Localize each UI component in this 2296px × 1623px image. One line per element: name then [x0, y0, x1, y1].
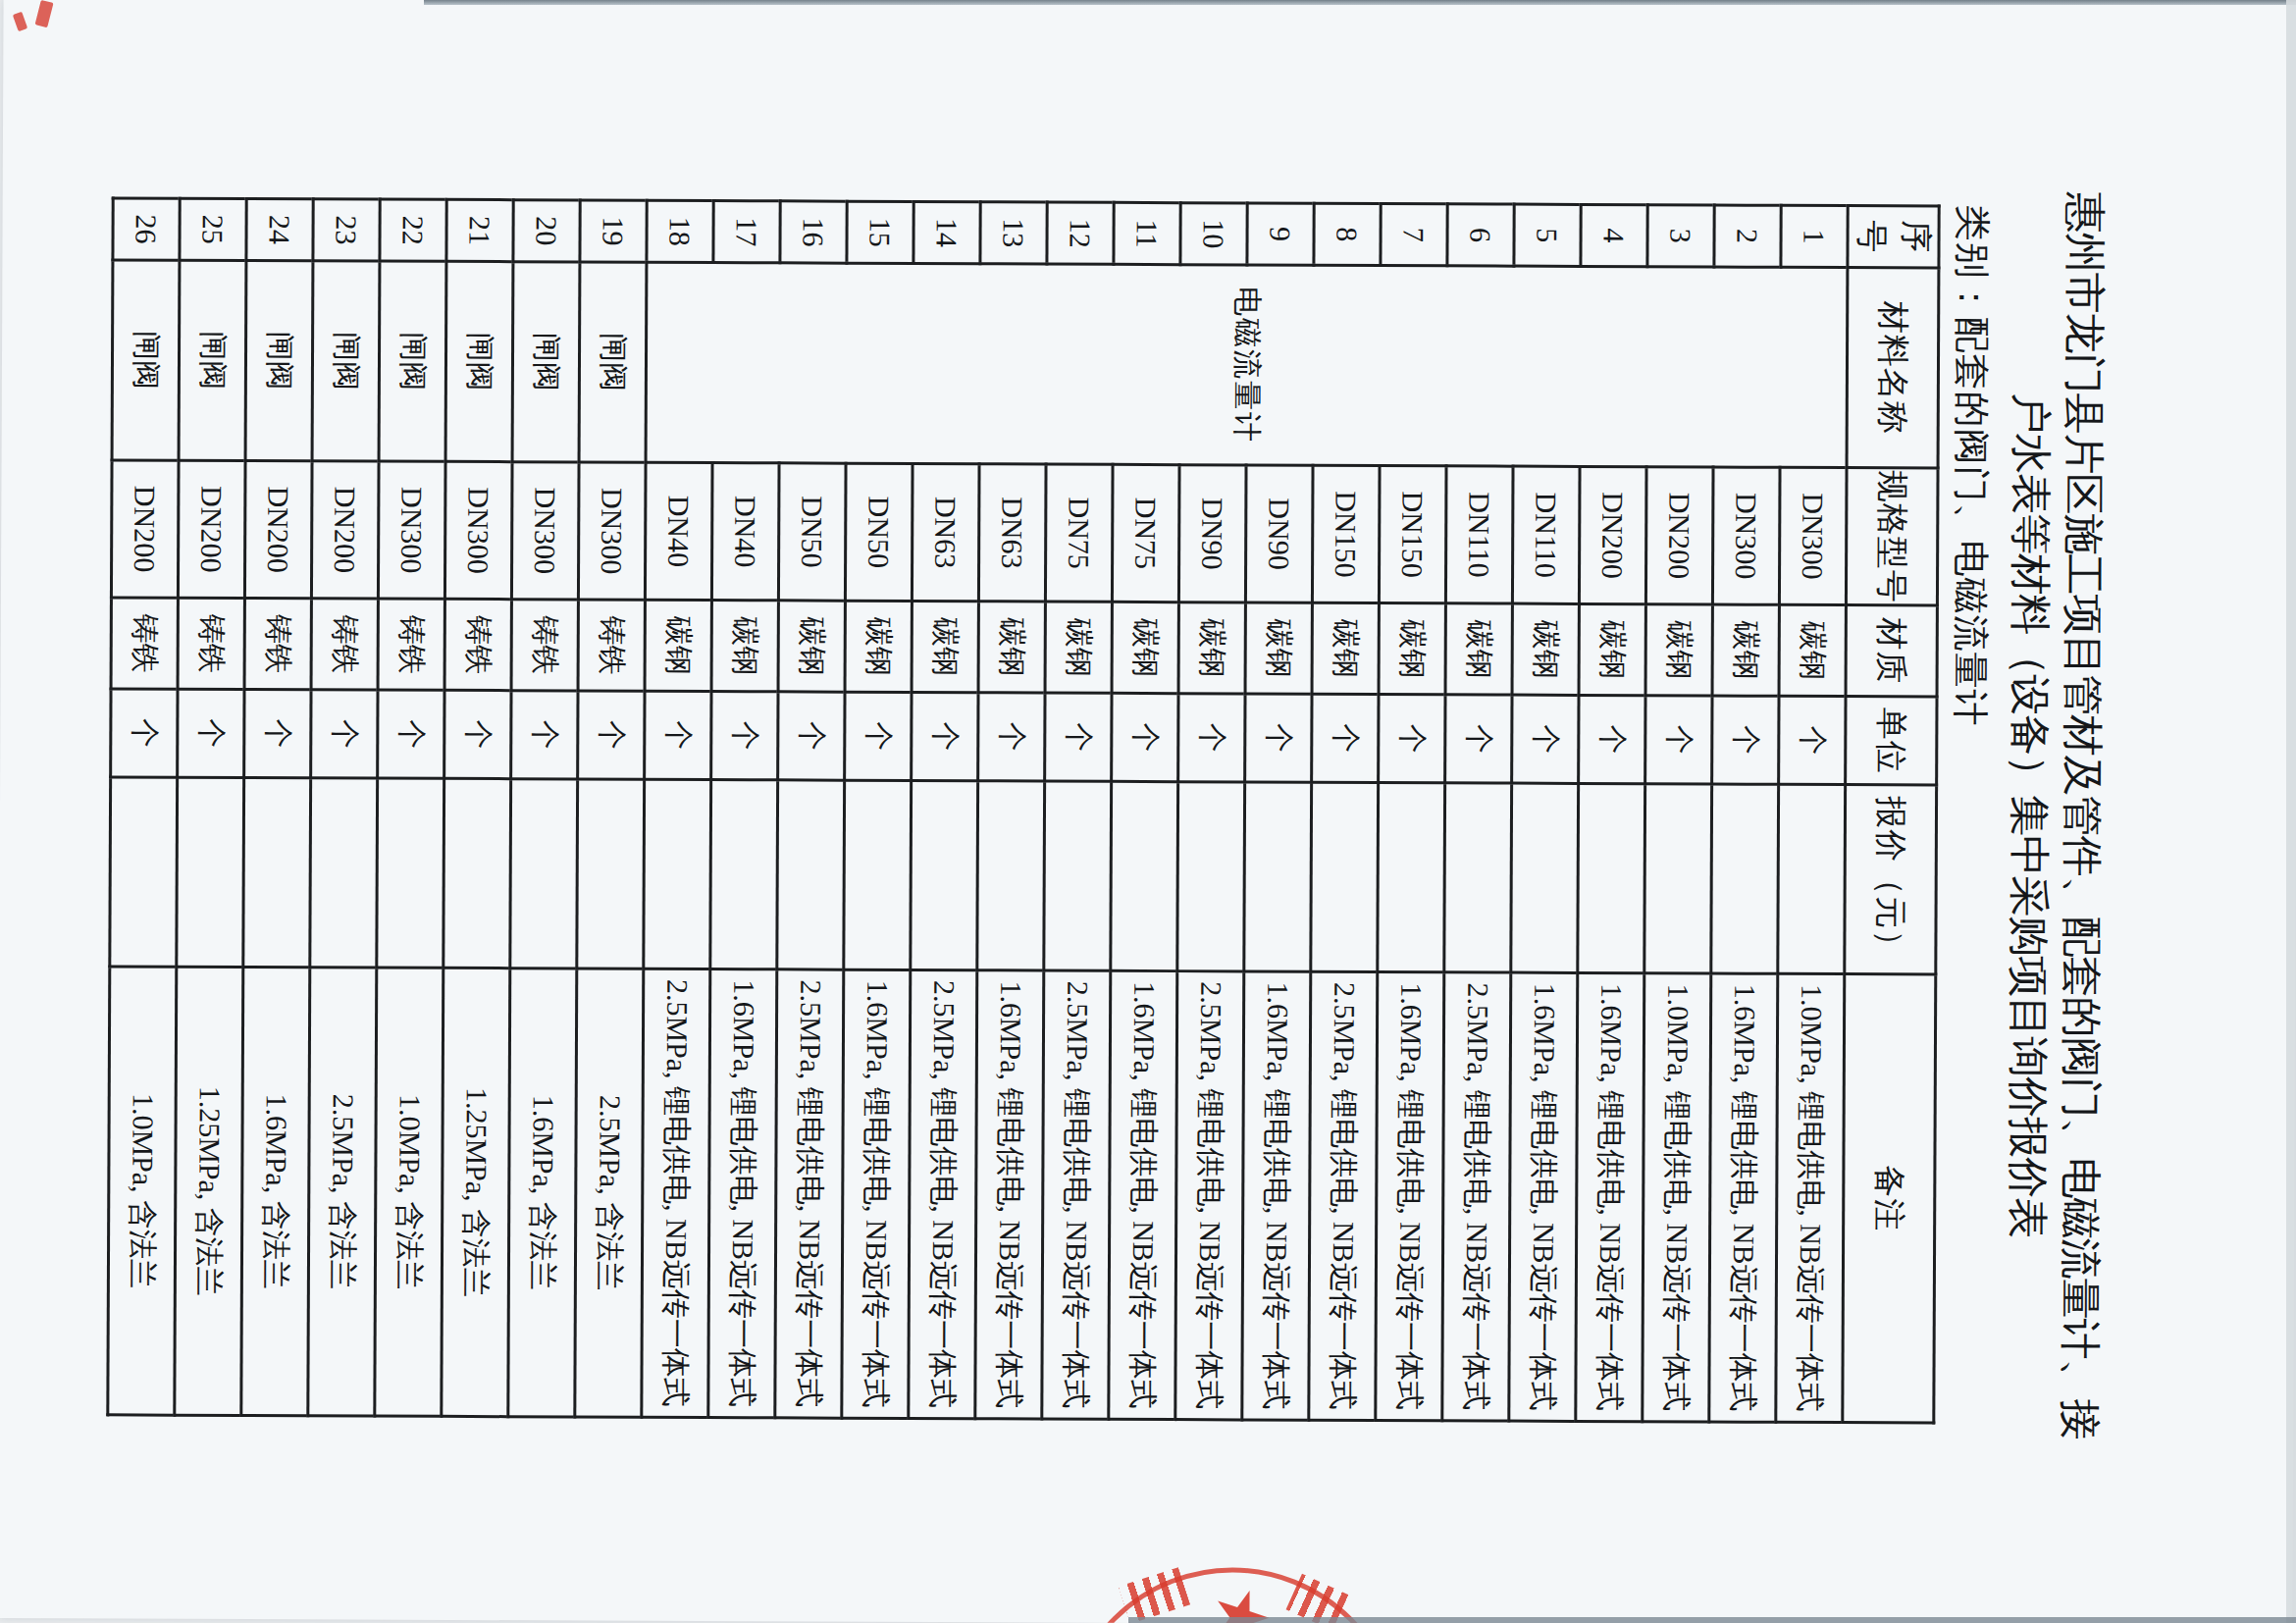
price-cell: [1711, 784, 1779, 973]
material-cell: 碳钢: [1645, 604, 1712, 696]
material-name-cell: 闸阀: [312, 261, 380, 461]
header-seq: 序号: [1848, 206, 1939, 268]
spec-cell: DN75: [1112, 464, 1179, 602]
table-row: 24闸阀DN200铸铁个1.6MPa, 含法兰: [241, 198, 313, 1415]
price-cell: [1177, 782, 1245, 971]
seq-cell: 9: [1247, 203, 1314, 265]
remark-cell: 2.5MPa, 锂电供电, NB远传一体式: [1442, 972, 1511, 1421]
unit-cell: 个: [244, 689, 311, 777]
unit-cell: 个: [1379, 695, 1445, 783]
unit-cell: 个: [1779, 696, 1846, 784]
material-name-cell: 闸阀: [112, 260, 180, 460]
unit-cell: 个: [378, 690, 444, 778]
price-cell: [510, 779, 578, 969]
unit-cell: 个: [111, 689, 178, 777]
seq-cell: 25: [180, 198, 246, 260]
red-ink-speck: [35, 0, 54, 27]
unit-cell: 个: [1245, 694, 1312, 782]
unit-cell: 个: [978, 693, 1045, 781]
remark-cell: 1.6MPa, 锂电供电, NB远传一体式: [1709, 973, 1778, 1422]
remark-cell: 2.5MPa, 锂电供电, NB远传一体式: [1309, 971, 1378, 1420]
material-name-cell: 电磁流量计: [646, 262, 1848, 467]
seq-cell: 19: [580, 200, 647, 262]
unit-cell: 个: [578, 691, 645, 779]
material-cell: 碳钢: [1178, 602, 1245, 694]
unit-cell: 个: [444, 690, 511, 778]
seq-cell: 17: [713, 201, 780, 263]
unit-cell: 个: [845, 692, 912, 780]
spec-cell: DN63: [912, 463, 979, 601]
price-cell: [110, 777, 178, 967]
price-cell: [444, 778, 511, 968]
table-row: 1电磁流量计DN300碳钢个1.0MPa, 锂电供电, NB远传一体式: [1776, 205, 1848, 1422]
material-cell: 碳钢: [912, 601, 978, 692]
remark-cell: 1.6MPa, 锂电供电, NB远传一体式: [1242, 971, 1311, 1420]
material-cell: 碳钢: [1245, 602, 1312, 694]
seq-cell: 2: [1714, 205, 1781, 267]
material-name-cell: 闸阀: [179, 260, 246, 460]
price-cell: [243, 777, 311, 967]
spec-cell: DN40: [711, 463, 779, 601]
remark-cell: 2.5MPa, 锂电供电, NB远传一体式: [775, 969, 844, 1418]
remark-cell: 1.6MPa, 含法兰: [508, 969, 577, 1417]
spec-cell: DN110: [1512, 466, 1580, 603]
document-title-line1: 惠州市龙门县片区施工项目管材及管件、配套的阀门、电磁流量计、接: [2051, 4, 2113, 1623]
table-row: 25闸阀DN200铸铁个1.25MPa, 含法兰: [175, 198, 246, 1415]
unit-cell: 个: [1579, 695, 1645, 783]
price-cell: [1511, 783, 1579, 972]
unit-cell: 个: [178, 689, 244, 777]
unit-cell: 个: [1512, 695, 1579, 783]
unit-cell: 个: [511, 691, 578, 779]
document-title-line2: 户水表等材料（设备）集中采购项目询价报价表: [1998, 4, 2060, 1623]
spec-cell: DN300: [378, 461, 445, 599]
material-cell: 铸铁: [511, 600, 578, 691]
seq-cell: 3: [1647, 205, 1714, 267]
price-cell: [377, 778, 444, 968]
price-cell: [177, 777, 244, 967]
seq-cell: 20: [513, 200, 580, 262]
seq-cell: 12: [1047, 202, 1114, 264]
material-cell: 碳钢: [1779, 604, 1846, 696]
spec-cell: DN300: [1779, 467, 1847, 604]
price-cell: [1311, 782, 1379, 971]
price-cell: [577, 779, 645, 969]
remark-cell: 1.25MPa, 含法兰: [442, 968, 510, 1416]
spec-cell: DN90: [1178, 465, 1246, 602]
header-spec: 规格型号: [1846, 468, 1938, 605]
table-row: 23闸阀DN200铸铁个2.5MPa, 含法兰: [308, 199, 380, 1416]
remark-cell: 1.6MPa, 锂电供电, NB远传一体式: [1509, 972, 1578, 1421]
remark-cell: 2.5MPa, 锂电供电, NB远传一体式: [1042, 970, 1111, 1419]
remark-cell: 2.5MPa, 锂电供电, NB远传一体式: [642, 969, 710, 1417]
material-name-cell: 闸阀: [379, 261, 446, 461]
unit-cell: 个: [1712, 696, 1779, 784]
material-cell: 铸铁: [378, 599, 444, 690]
red-ink-speck: [13, 12, 27, 31]
seq-cell: 4: [1581, 204, 1647, 266]
spec-cell: DN200: [1579, 466, 1646, 603]
unit-cell: 个: [1112, 693, 1178, 781]
spec-cell: DN75: [1045, 464, 1113, 602]
table-body: 1电磁流量计DN300碳钢个1.0MPa, 锂电供电, NB远传一体式2DN30…: [108, 198, 1848, 1423]
material-cell: 铸铁: [111, 598, 178, 689]
material-cell: 碳钢: [1579, 603, 1645, 695]
seq-cell: 14: [913, 201, 980, 263]
unit-cell: 个: [778, 692, 845, 780]
price-cell: [1778, 784, 1846, 973]
table-row: 26闸阀DN200铸铁个1.0MPa, 含法兰: [108, 198, 180, 1415]
price-cell: [911, 780, 978, 969]
price-cell: [1111, 781, 1178, 970]
spec-cell: DN200: [111, 460, 179, 598]
seq-cell: 8: [1314, 203, 1381, 265]
price-cell: [1644, 784, 1712, 973]
material-cell: 铸铁: [178, 598, 244, 689]
material-name-cell: 闸阀: [245, 260, 313, 460]
table-header-row: 序号 材料名称 规格型号 材质 单位 报价（元） 备注: [1843, 206, 1939, 1423]
material-cell: 碳钢: [711, 601, 778, 692]
spec-cell: DN40: [645, 462, 712, 600]
material-cell: 铸铁: [244, 598, 311, 689]
seq-cell: 24: [246, 198, 313, 260]
price-cell: [977, 781, 1045, 970]
material-cell: 碳钢: [1045, 602, 1112, 693]
price-cell: [1444, 783, 1512, 972]
remark-cell: 1.6MPa, 锂电供电, NB远传一体式: [1576, 972, 1644, 1421]
seq-cell: 13: [980, 202, 1047, 264]
unit-cell: 个: [711, 692, 778, 780]
seq-cell: 23: [313, 199, 380, 261]
remark-cell: 1.6MPa, 锂电供电, NB远传一体式: [1109, 970, 1177, 1419]
header-price: 报价（元）: [1845, 785, 1937, 974]
price-cell: [310, 778, 378, 968]
table-row: 22闸阀DN300铸铁个1.0MPa, 含法兰: [375, 199, 446, 1416]
seq-cell: 7: [1381, 204, 1447, 266]
unit-cell: 个: [1312, 694, 1379, 782]
remark-cell: 1.6MPa, 锂电供电, NB远传一体式: [708, 969, 777, 1418]
unit-cell: 个: [1178, 694, 1245, 782]
seq-cell: 26: [113, 198, 180, 260]
header-material: 材质: [1846, 605, 1937, 697]
material-name-cell: 闸阀: [445, 261, 513, 461]
material-cell: 碳钢: [1112, 602, 1178, 693]
spec-cell: DN300: [1712, 467, 1780, 604]
material-name-cell: 闸阀: [579, 262, 647, 462]
seq-cell: 18: [647, 200, 713, 262]
unit-cell: 个: [1645, 696, 1712, 784]
material-cell: 碳钢: [645, 600, 711, 691]
material-cell: 铸铁: [444, 599, 511, 690]
unit-cell: 个: [1445, 695, 1512, 783]
price-cell: [1378, 783, 1445, 972]
seq-cell: 21: [446, 199, 513, 261]
spec-cell: DN300: [578, 462, 646, 600]
material-cell: 铸铁: [578, 600, 645, 691]
scanned-page: 惠州市龙门县片区施工项目管材及管件、配套的阀门、电磁流量计、接 户水表等材料（设…: [0, 0, 2296, 1623]
spec-cell: DN200: [178, 460, 245, 598]
spec-cell: DN110: [1445, 466, 1513, 603]
spec-cell: DN200: [1645, 467, 1713, 604]
seq-cell: 11: [1114, 202, 1180, 264]
spec-cell: DN50: [778, 463, 846, 601]
price-cell: [644, 779, 711, 969]
spec-cell: DN300: [511, 462, 579, 600]
seq-cell: 16: [780, 201, 847, 263]
price-cell: [1244, 782, 1312, 971]
material-cell: 铸铁: [311, 599, 378, 690]
remark-cell: 2.5MPa, 含法兰: [308, 968, 377, 1416]
red-seal-star-icon: ★: [1207, 1586, 1278, 1623]
header-name: 材料名称: [1847, 268, 1939, 468]
header-unit: 单位: [1846, 697, 1937, 785]
table-row: 19闸阀DN300铸铁个2.5MPa, 含法兰: [575, 200, 647, 1417]
material-cell: 碳钢: [778, 601, 845, 692]
table-row: 21闸阀DN300铸铁个1.25MPa, 含法兰: [442, 199, 513, 1416]
seq-cell: 1: [1781, 205, 1848, 267]
unit-cell: 个: [311, 690, 378, 778]
unit-cell: 个: [645, 691, 711, 779]
material-cell: 碳钢: [1312, 602, 1379, 694]
remark-cell: 1.0MPa, 含法兰: [375, 968, 444, 1416]
header-remark: 备注: [1843, 974, 1936, 1423]
material-cell: 碳钢: [1712, 604, 1779, 696]
price-cell: [710, 780, 778, 969]
spec-cell: DN63: [978, 464, 1046, 602]
remark-cell: 1.6MPa, 锂电供电, NB远传一体式: [1376, 972, 1444, 1421]
spec-cell: DN90: [1245, 465, 1313, 602]
remark-cell: 2.5MPa, 锂电供电, NB远传一体式: [909, 969, 977, 1418]
scanned-document-canvas: { "document": { "title_line1": "惠州市龙门县片区…: [0, 0, 2296, 1623]
remark-cell: 1.0MPa, 锂电供电, NB远传一体式: [1643, 973, 1711, 1422]
material-cell: 碳钢: [1512, 603, 1579, 695]
seq-cell: 5: [1514, 204, 1581, 266]
material-cell: 碳钢: [978, 602, 1045, 693]
material-name-cell: 闸阀: [512, 262, 580, 462]
seq-cell: 10: [1180, 203, 1247, 265]
spec-cell: DN150: [1379, 466, 1446, 603]
remark-cell: 1.0MPa, 锂电供电, NB远传一体式: [1776, 973, 1845, 1422]
remark-cell: 1.6MPa, 锂电供电, NB远传一体式: [975, 970, 1044, 1419]
spec-cell: DN150: [1312, 465, 1380, 602]
category-label: 类别：配套的阀门、电磁流量计: [1945, 205, 1996, 727]
quotation-table: 序号 材料名称 规格型号 材质 单位 报价（元） 备注 1电磁流量计DN300碳…: [106, 196, 1940, 1424]
spec-cell: DN300: [444, 461, 512, 599]
seq-cell: 15: [847, 201, 913, 263]
price-cell: [777, 780, 845, 969]
remark-cell: 2.5MPa, 含法兰: [575, 969, 644, 1417]
material-cell: 碳钢: [1445, 603, 1512, 695]
seq-cell: 22: [380, 199, 446, 261]
spec-cell: DN200: [244, 460, 312, 598]
table-row: 20闸阀DN300铸铁个1.6MPa, 含法兰: [508, 200, 580, 1417]
remark-cell: 1.6MPa, 含法兰: [241, 967, 310, 1415]
remark-cell: 1.0MPa, 含法兰: [108, 967, 177, 1415]
unit-cell: 个: [912, 692, 978, 780]
spec-cell: DN200: [311, 461, 379, 599]
price-cell: [1044, 781, 1112, 970]
spec-cell: DN50: [845, 463, 913, 601]
material-cell: 碳钢: [845, 601, 912, 692]
remark-cell: 2.5MPa, 锂电供电, NB远传一体式: [1175, 971, 1244, 1420]
material-cell: 碳钢: [1379, 603, 1445, 695]
price-cell: [844, 780, 912, 969]
remark-cell: 1.25MPa, 含法兰: [175, 967, 243, 1415]
unit-cell: 个: [1045, 693, 1112, 781]
price-cell: [1578, 783, 1645, 972]
seq-cell: 6: [1447, 204, 1514, 266]
remark-cell: 1.6MPa, 锂电供电, NB远传一体式: [842, 969, 911, 1418]
